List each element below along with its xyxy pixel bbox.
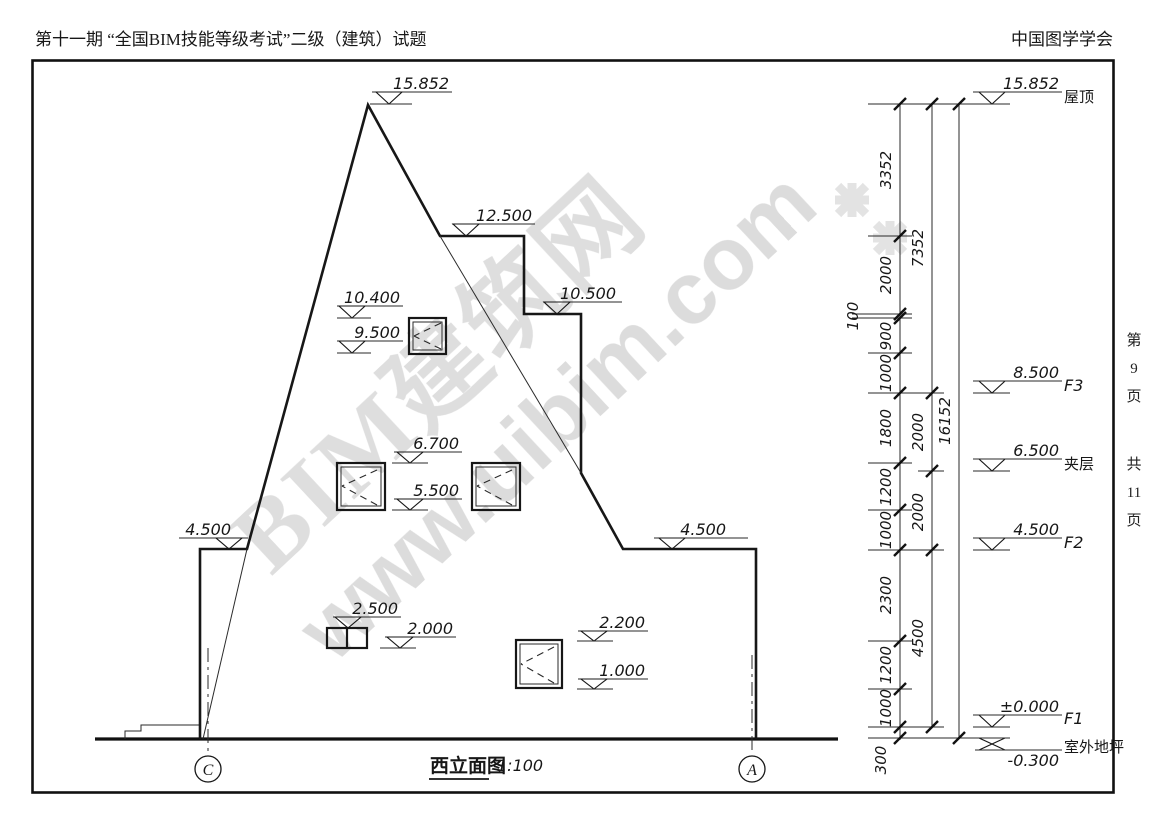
elevation-drawing-canvas: 第十一期 “全国BIM技能等级考试”二级（建筑）试题 中国图学学会 BIM建筑网… xyxy=(0,0,1169,826)
dim-value: 2000 xyxy=(909,413,927,451)
dim-value: 1000 xyxy=(877,354,895,392)
spot-elevation-value: 4.500 xyxy=(185,520,231,539)
spot-elevation-10400: 10.400 xyxy=(337,288,403,318)
dim-value: 2000 xyxy=(877,256,895,294)
view-scale: 1:100 xyxy=(497,756,543,775)
spot-elevation-2200: 2.200 xyxy=(577,613,648,641)
level-marker-site-ground: -0.300 室外地坪 xyxy=(973,738,1124,770)
dim-value: 900 xyxy=(877,322,895,351)
level-label: 室外地坪 xyxy=(1064,739,1124,756)
window-lower xyxy=(516,640,562,688)
dim-value: 2000 xyxy=(909,493,927,531)
spot-elevation-peak: 15.852 xyxy=(370,74,452,104)
entry-steps xyxy=(125,725,200,739)
spot-elevation-1000: 1.000 xyxy=(577,661,648,689)
dim-value: 1200 xyxy=(877,468,895,506)
dim-value: 4500 xyxy=(909,619,927,657)
dimension-ticks xyxy=(894,98,965,744)
view-title: 西立面图 xyxy=(430,754,506,777)
dimension-labels-total: 16152 xyxy=(936,397,954,445)
spot-elevation-value: 6.700 xyxy=(413,434,459,453)
level-label: F3 xyxy=(1064,376,1083,395)
sheet-header-title: 第十一期 “全国BIM技能等级考试”二级（建筑）试题 xyxy=(35,30,426,49)
spot-elevation-value: 15.852 xyxy=(393,74,449,93)
watermark-star xyxy=(835,183,869,217)
grid-bubble-C-label: C xyxy=(203,762,214,779)
margin-page-total: 共 11 页 xyxy=(1122,452,1146,535)
watermark-star xyxy=(873,221,907,255)
sheet-header-organization: 中国图学学会 xyxy=(1011,30,1113,49)
dim-value: 16152 xyxy=(936,397,954,445)
level-label: 夹层 xyxy=(1064,456,1094,473)
level-label: 屋顶 xyxy=(1064,90,1094,106)
spot-elevation-value: 2.500 xyxy=(352,599,398,618)
spot-elevation-value: 10.500 xyxy=(560,284,616,303)
view-title-block: 西立面图 1:100 xyxy=(429,754,543,779)
dim-value: 1000 xyxy=(877,689,895,727)
dim-value: 100 xyxy=(844,302,862,331)
spot-elevation-value: 5.500 xyxy=(413,481,459,500)
spot-elevation-value: 2.200 xyxy=(599,613,645,632)
level-label: F2 xyxy=(1064,533,1083,552)
level-value: ±0.000 xyxy=(1000,697,1059,716)
dim-value: 1800 xyxy=(877,409,895,447)
dim-value: 1000 xyxy=(877,511,895,549)
level-value: 8.500 xyxy=(1013,363,1059,382)
watermark: BIM建筑网 www.uibim.com xyxy=(199,67,907,680)
margin-page-number: 第 9 页 xyxy=(1122,328,1146,411)
dimension-extension-lines xyxy=(852,104,1010,738)
level-label: F1 xyxy=(1064,709,1083,728)
level-value: 15.852 xyxy=(1003,74,1059,93)
spot-elevation-value: 4.500 xyxy=(680,520,726,539)
level-marker-f2: 4.500 F2 xyxy=(973,520,1083,552)
dim-value: 3352 xyxy=(877,151,895,189)
level-value: -0.300 xyxy=(1007,751,1059,770)
dimension-labels-middle: 7352 2000 2000 4500 xyxy=(909,229,927,657)
dim-value: 1200 xyxy=(877,646,895,684)
level-marker-mezzanine: 6.500 夹层 xyxy=(973,441,1094,473)
dim-value: 300 xyxy=(872,746,890,775)
level-marker-f1: ±0.000 F1 xyxy=(973,697,1083,728)
drawing-sheet: 第十一期 “全国BIM技能等级考试”二级（建筑）试题 中国图学学会 BIM建筑网… xyxy=(0,0,1169,826)
roof-slope-line-left xyxy=(203,549,247,739)
grid-bubble-A-label: A xyxy=(746,762,757,779)
spot-elevation-value: 10.400 xyxy=(344,288,400,307)
spot-elevation-value: 12.500 xyxy=(476,206,532,225)
spot-elevation-value: 9.500 xyxy=(354,323,400,342)
spot-elevation-value: 1.000 xyxy=(599,661,645,680)
level-value: 4.500 xyxy=(1013,520,1059,539)
level-marker-f3: 8.500 F3 xyxy=(973,363,1083,395)
spot-elevation-parapet-right: 4.500 xyxy=(654,520,748,549)
dim-value: 2300 xyxy=(877,576,895,614)
level-value: 6.500 xyxy=(1013,441,1059,460)
spot-elevation-value: 2.000 xyxy=(407,619,453,638)
dim-value: 7352 xyxy=(909,229,927,267)
level-marker-roof: 15.852 屋顶 xyxy=(973,74,1094,106)
